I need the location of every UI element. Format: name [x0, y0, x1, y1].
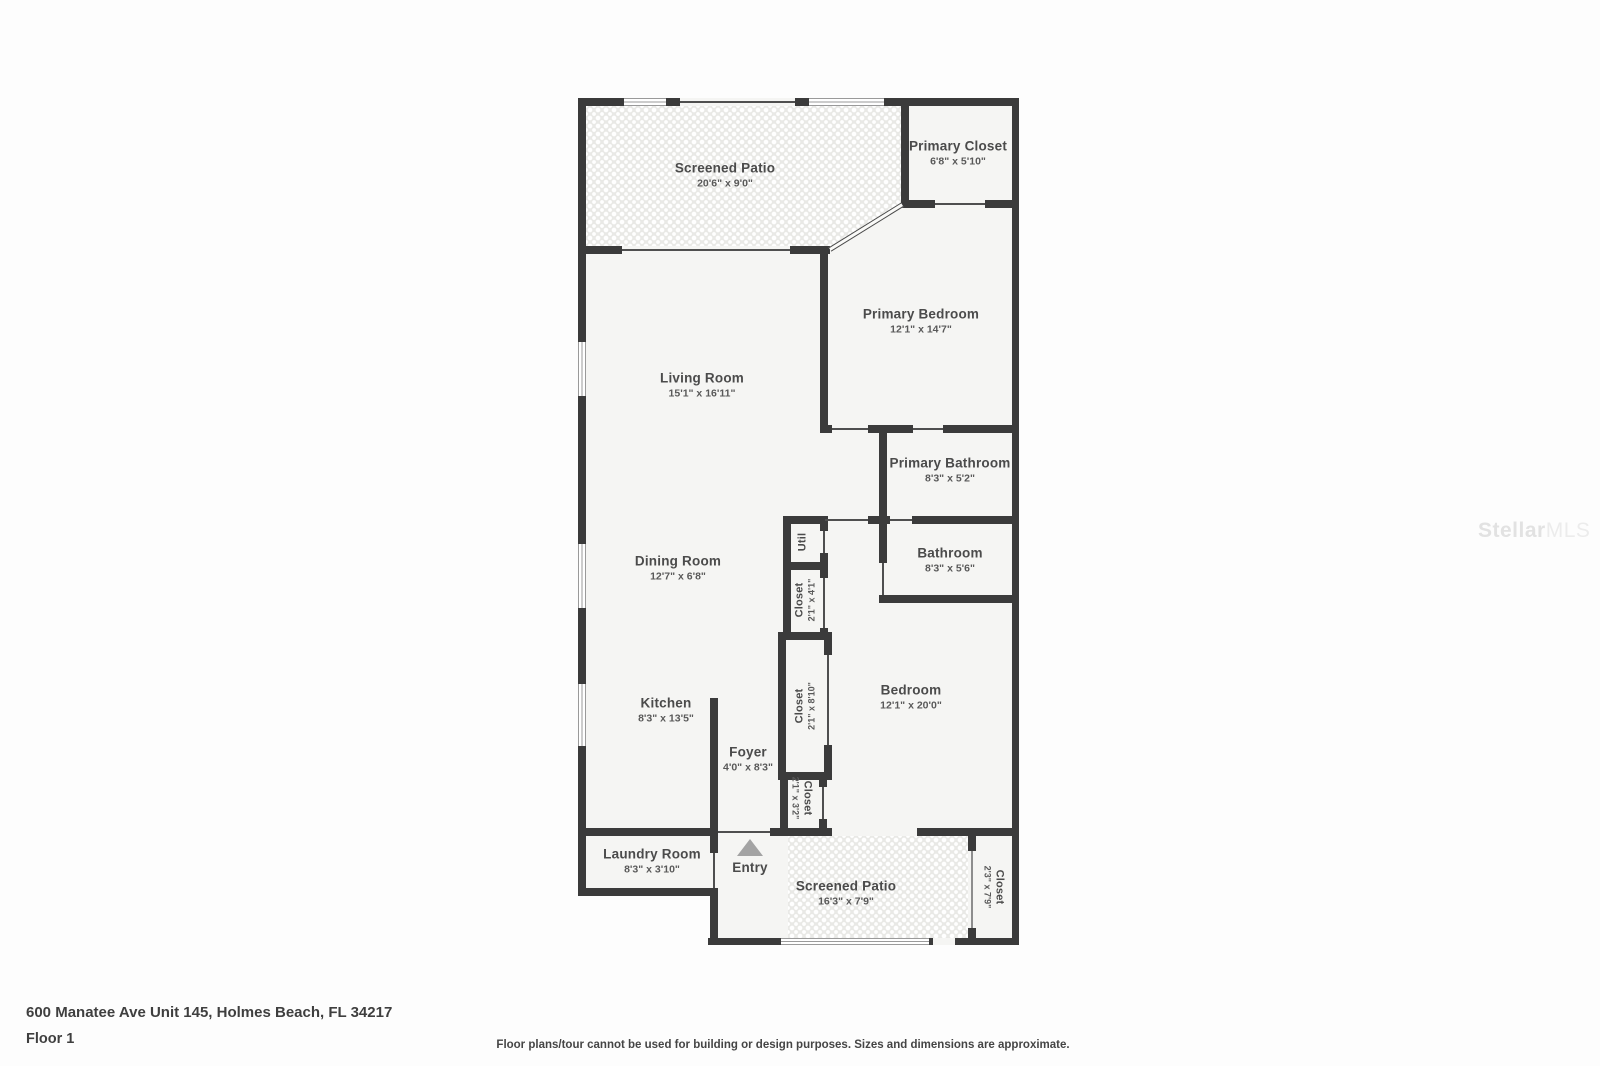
wall [917, 828, 1019, 836]
door [890, 519, 912, 521]
room-label-living-room: Living Room 15'1" x 16'11" [660, 370, 744, 399]
stellar-mls-watermark: StellarMLS [1478, 519, 1590, 543]
door [882, 563, 884, 595]
wall [819, 772, 827, 787]
exterior-area [578, 896, 710, 945]
floor-plan: Screened Patio 20'6" x 9'0" Primary Clos… [578, 98, 1019, 945]
window [805, 98, 888, 106]
window [620, 98, 670, 106]
wall [901, 98, 909, 208]
wall [578, 246, 622, 254]
wall [879, 523, 887, 563]
room-label-closet-hall-tall: Closet 2'1" x 8'10" [793, 682, 816, 730]
wall [783, 516, 791, 640]
room-label-closet-foyer: Closet 2'1" x 3'2" [790, 777, 813, 820]
wall [770, 828, 782, 836]
wall [820, 425, 832, 433]
door [825, 519, 868, 521]
wall [901, 200, 935, 208]
wall [985, 200, 1019, 208]
wall [578, 828, 718, 836]
door [622, 249, 790, 251]
wall [778, 632, 786, 778]
wall [710, 888, 718, 945]
room-label-laundry-room: Laundry Room 8'3" x 3'10" [603, 846, 701, 875]
property-address: 600 Manatee Ave Unit 145, Holmes Beach, … [26, 1004, 392, 1021]
wall [912, 516, 1019, 524]
window [777, 938, 933, 945]
wall [783, 562, 828, 570]
wall [578, 888, 718, 896]
door [913, 428, 943, 430]
door [680, 101, 795, 103]
floor-number: Floor 1 [26, 1031, 74, 1047]
wall [820, 250, 828, 433]
room-label-bathroom: Bathroom 8'3" x 5'6" [917, 545, 982, 574]
room-label-primary-bedroom: Primary Bedroom 12'1" x 14'7" [863, 306, 979, 335]
room-label-bedroom: Bedroom 12'1" x 20'0" [880, 682, 942, 711]
wall [710, 836, 718, 853]
room-label-screened-patio-top: Screened Patio 20'6" x 9'0" [675, 160, 775, 189]
door [718, 831, 770, 833]
wall [780, 772, 788, 836]
page: Screened Patio 20'6" x 9'0" Primary Clos… [0, 0, 1600, 1066]
room-label-closet-patio: Closet 2'3" x 7'9" [982, 866, 1005, 909]
wall [879, 595, 1019, 603]
room-label-primary-bathroom: Primary Bathroom 8'3" x 5'2" [890, 455, 1011, 484]
room-label-dining-room: Dining Room 12'7" x 6'8" [635, 553, 721, 582]
entry-arrow-icon [737, 839, 763, 856]
room-label-util: Util [797, 533, 810, 552]
room-label-foyer: Foyer 4'0" x 8'3" [723, 744, 773, 773]
disclaimer-text: Floor plans/tour cannot be used for buil… [496, 1039, 1069, 1051]
room-label-closet-hall-small: Closet 2'1" x 4'1" [793, 579, 816, 622]
door [823, 578, 825, 628]
room-label-kitchen: Kitchen 8'3" x 13'5" [638, 695, 694, 724]
door [822, 787, 824, 819]
wall [968, 836, 976, 851]
door [713, 853, 715, 888]
wall [782, 828, 832, 836]
wall [868, 425, 913, 433]
room-label-primary-closet: Primary Closet 6'8" x 5'10" [909, 138, 1007, 167]
wall [943, 425, 1019, 433]
window [578, 338, 586, 400]
wall [824, 632, 832, 655]
wall [955, 938, 1019, 945]
wall [670, 98, 680, 106]
wall [578, 98, 586, 896]
window [578, 680, 586, 750]
window [578, 540, 586, 612]
wall [710, 698, 718, 836]
room-label-screened-patio-bottom: Screened Patio 16'3" x 7'9" [796, 878, 896, 907]
door [832, 428, 868, 430]
wall [708, 938, 777, 945]
wall [879, 433, 887, 523]
door [823, 531, 825, 553]
door [935, 203, 985, 205]
wall [795, 98, 805, 106]
door [827, 655, 829, 745]
room-label-entry: Entry [732, 860, 768, 876]
screen-wall [971, 851, 973, 928]
